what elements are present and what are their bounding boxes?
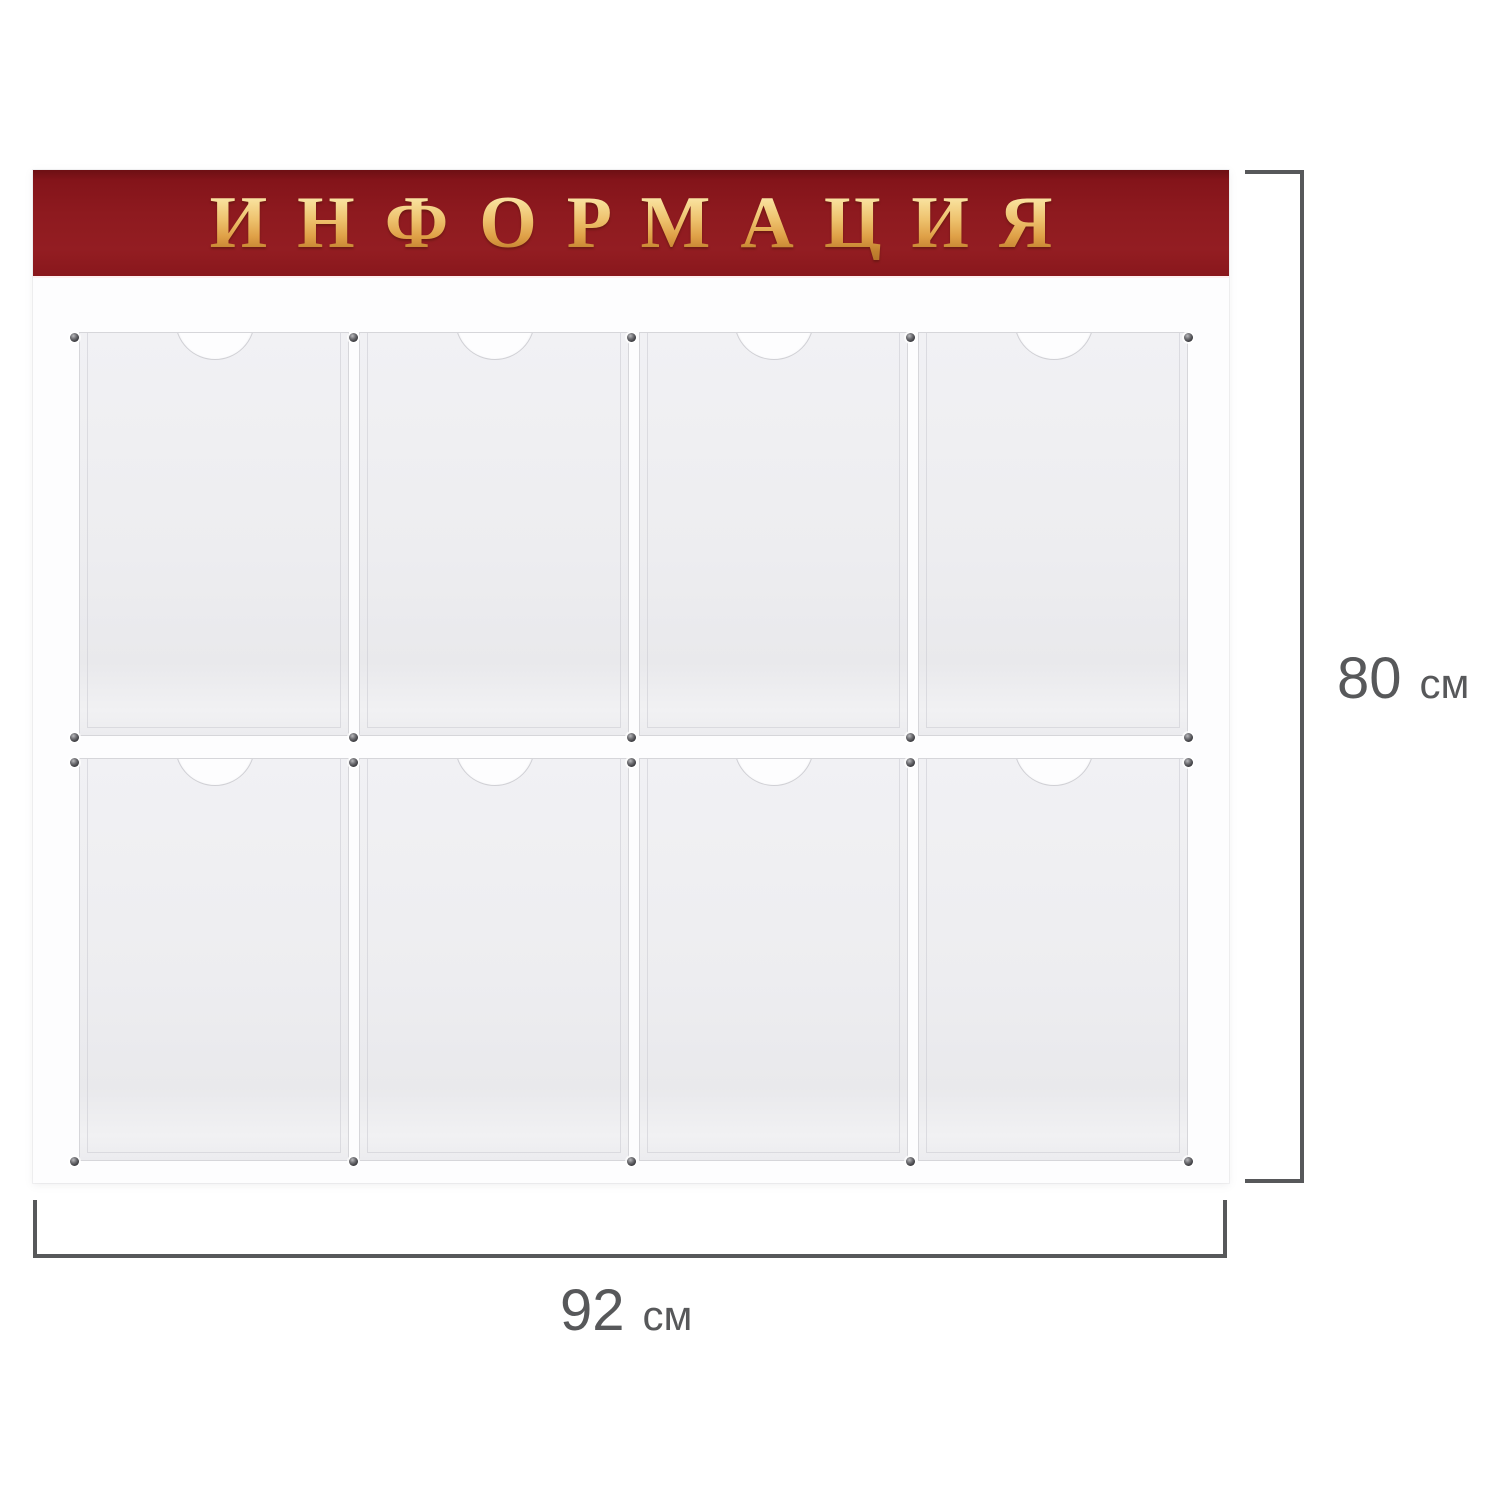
board-title: ИНФОРМАЦИЯ bbox=[180, 186, 1083, 260]
pocket bbox=[918, 332, 1188, 736]
screw-icon bbox=[1184, 733, 1193, 742]
screw-icon bbox=[1184, 758, 1193, 767]
width-dimension-line bbox=[33, 1254, 1227, 1258]
pocket-notch-cutout bbox=[455, 332, 535, 360]
pocket-notch-cutout bbox=[455, 758, 535, 786]
height-unit: см bbox=[1420, 663, 1470, 705]
pocket-notch-cutout bbox=[175, 332, 255, 360]
width-unit: см bbox=[643, 1295, 693, 1337]
screw-icon bbox=[627, 733, 636, 742]
info-board: ИНФОРМАЦИЯ bbox=[33, 170, 1229, 1183]
height-dimension-tick-top bbox=[1245, 170, 1304, 174]
width-value: 92 bbox=[560, 1282, 625, 1340]
screw-icon bbox=[906, 333, 915, 342]
pocket bbox=[79, 758, 349, 1162]
screw-icon bbox=[349, 1157, 358, 1166]
pocket bbox=[639, 758, 909, 1162]
screw-icon bbox=[349, 758, 358, 767]
height-dimension-line bbox=[1300, 170, 1304, 1183]
pocket-grid bbox=[79, 332, 1188, 1161]
screw-icon bbox=[1184, 333, 1193, 342]
pocket bbox=[359, 758, 629, 1162]
screw-icon bbox=[906, 758, 915, 767]
width-dimension-tick-right bbox=[1223, 1200, 1227, 1258]
pocket-notch-cutout bbox=[734, 758, 814, 786]
screw-icon bbox=[70, 333, 79, 342]
pocket-notch-cutout bbox=[1014, 758, 1094, 786]
board-header: ИНФОРМАЦИЯ bbox=[33, 170, 1229, 276]
screw-icon bbox=[906, 733, 915, 742]
screw-icon bbox=[349, 733, 358, 742]
product-image: ИНФОРМАЦИЯ 80 см 92 см bbox=[0, 0, 1500, 1500]
screw-icon bbox=[70, 1157, 79, 1166]
pocket bbox=[359, 332, 629, 736]
pocket bbox=[918, 758, 1188, 1162]
screw-icon bbox=[627, 333, 636, 342]
pocket-notch-cutout bbox=[175, 758, 255, 786]
height-dimension-tick-bottom bbox=[1245, 1179, 1304, 1183]
pocket bbox=[639, 332, 909, 736]
screw-icon bbox=[627, 1157, 636, 1166]
screw-icon bbox=[70, 733, 79, 742]
pocket bbox=[79, 332, 349, 736]
pocket-notch-cutout bbox=[734, 332, 814, 360]
screw-icon bbox=[627, 758, 636, 767]
screw-icon bbox=[70, 758, 79, 767]
width-dimension-tick-left bbox=[33, 1200, 37, 1258]
screw-icon bbox=[906, 1157, 915, 1166]
height-dimension-label: 80 см bbox=[1337, 650, 1469, 708]
screw-icon bbox=[349, 333, 358, 342]
height-value: 80 bbox=[1337, 650, 1402, 708]
screw-icon bbox=[1184, 1157, 1193, 1166]
pocket-notch-cutout bbox=[1014, 332, 1094, 360]
width-dimension-label: 92 см bbox=[560, 1282, 692, 1340]
